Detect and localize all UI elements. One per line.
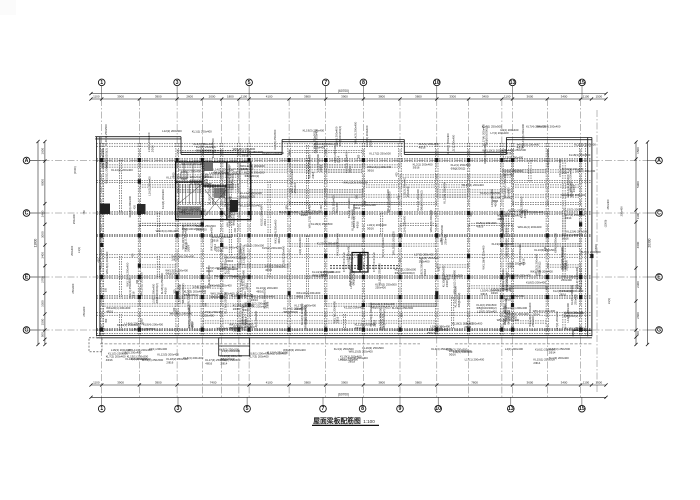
svg-text:L3(3) 200x400: L3(3) 200x400: [298, 237, 302, 255]
svg-text:Φ8@100/200(2): Φ8@100/200(2): [181, 283, 185, 303]
svg-text:KL17(3) 250x500: KL17(3) 250x500: [134, 327, 156, 331]
svg-text:WKL5(1) 200x400: WKL5(1) 200x400: [105, 161, 109, 184]
svg-text:2Φ16: 2Φ16: [464, 325, 471, 329]
svg-text:250x400: 250x400: [293, 182, 297, 193]
svg-text:400: 400: [173, 172, 176, 177]
svg-text:400: 400: [396, 172, 399, 177]
svg-text:KL19(3) 250x500: KL19(3) 250x500: [492, 242, 514, 246]
svg-text:KL17(2) 250x500: KL17(2) 250x500: [369, 152, 391, 156]
svg-text:L1(3): L1(3): [607, 298, 611, 304]
svg-text:4Φ16: 4Φ16: [493, 200, 497, 207]
svg-text:7800: 7800: [471, 380, 478, 384]
svg-text:3800: 3800: [415, 95, 422, 99]
svg-text:1500: 1500: [595, 380, 602, 384]
svg-text:350: 350: [288, 151, 291, 156]
svg-text:350: 350: [251, 293, 254, 298]
svg-text:4Φ16: 4Φ16: [296, 294, 303, 298]
svg-text:3400: 3400: [40, 252, 44, 259]
svg-text:9: 9: [399, 406, 402, 412]
svg-text:750: 750: [82, 210, 86, 215]
svg-text:250x400: 250x400: [70, 245, 74, 256]
svg-text:E: E: [25, 275, 29, 281]
svg-text:KL18(4) 250x500: KL18(4) 250x500: [311, 222, 333, 226]
svg-text:2Φ16: 2Φ16: [559, 292, 566, 296]
svg-text:Φ8@200(2): Φ8@200(2): [245, 174, 260, 178]
svg-text:4600: 4600: [636, 241, 640, 248]
svg-text:250x400: 250x400: [606, 199, 610, 210]
svg-text:350: 350: [105, 318, 108, 323]
svg-text:Φ8@200(2): Φ8@200(2): [457, 293, 461, 308]
svg-text:250x400: 250x400: [620, 206, 624, 217]
svg-text:KL1(2) 200x400: KL1(2) 200x400: [344, 306, 364, 310]
svg-text:WKL4(3) 200x400: WKL4(3) 200x400: [353, 121, 357, 144]
svg-text:5: 5: [248, 80, 251, 86]
svg-text:1500: 1500: [595, 95, 602, 99]
svg-text:KL10(2) 250x500: KL10(2) 250x500: [104, 124, 108, 146]
svg-text:3800: 3800: [304, 380, 311, 384]
svg-text:KL12(4) 200x400: KL12(4) 200x400: [128, 195, 132, 217]
svg-text:WKL8(2) 200x400: WKL8(2) 200x400: [105, 251, 109, 274]
svg-text:KL4(4) 250x500: KL4(4) 250x500: [273, 129, 277, 149]
svg-text:L7(3) 200x400: L7(3) 200x400: [555, 311, 559, 329]
svg-text:400: 400: [320, 205, 323, 210]
svg-text:KL14(3) 200x400: KL14(3) 200x400: [111, 168, 133, 172]
svg-text:250x400: 250x400: [443, 234, 447, 245]
svg-text:1100: 1100: [636, 212, 640, 219]
svg-text:300: 300: [358, 154, 361, 159]
svg-text:L4(4) 200x400: L4(4) 200x400: [505, 347, 523, 351]
svg-text:Φ8@100/200(2): Φ8@100/200(2): [338, 126, 342, 146]
svg-text:KL20(3) 250x500: KL20(3) 250x500: [263, 151, 285, 155]
svg-text:L7(4) 200x400: L7(4) 200x400: [491, 131, 509, 135]
svg-text:300: 300: [206, 173, 209, 178]
svg-text:13: 13: [508, 406, 514, 412]
svg-text:2000: 2000: [209, 95, 216, 99]
svg-text:4Φ16: 4Φ16: [106, 310, 113, 314]
svg-text:WKL6(4) 200x400: WKL6(4) 200x400: [429, 209, 433, 232]
svg-text:2Φ18: 2Φ18: [131, 291, 135, 298]
svg-text:L17(2) 200x400: L17(2) 200x400: [546, 148, 550, 168]
svg-text:G: G: [657, 328, 661, 334]
svg-text:G: G: [24, 328, 28, 334]
svg-text:4Φ16: 4Φ16: [205, 361, 212, 365]
svg-text:KL8(3) 200x400: KL8(3) 200x400: [526, 281, 546, 285]
svg-text:3Φ16: 3Φ16: [242, 154, 249, 158]
svg-text:KL7(3) 200x400: KL7(3) 200x400: [249, 354, 269, 358]
svg-text:WKL10(2) 200x400: WKL10(2) 200x400: [225, 203, 229, 228]
svg-text:2Φ14: 2Φ14: [565, 216, 572, 220]
svg-text:KL15(4) 250x500: KL15(4) 250x500: [312, 131, 316, 153]
svg-text:2Φ14: 2Φ14: [572, 185, 576, 192]
svg-text:2Φ14: 2Φ14: [337, 156, 341, 163]
svg-text:4100: 4100: [266, 95, 273, 99]
svg-text:KL19(3) 250x500: KL19(3) 250x500: [362, 346, 384, 350]
svg-text:4Φ16: 4Φ16: [191, 322, 195, 329]
svg-text:1100: 1100: [93, 95, 100, 99]
svg-text:350: 350: [99, 265, 102, 270]
svg-text:4Φ16: 4Φ16: [265, 268, 272, 272]
svg-text:2Φ16: 2Φ16: [311, 171, 315, 178]
svg-text:KL18(2) 200x400: KL18(2) 200x400: [446, 133, 450, 155]
svg-text:250x400: 250x400: [564, 260, 568, 271]
svg-text:200: 200: [232, 266, 235, 271]
svg-text:KL4(1) 250x500: KL4(1) 250x500: [482, 125, 502, 129]
svg-text:250x400: 250x400: [506, 187, 510, 198]
svg-text:1: 1: [100, 80, 103, 86]
svg-text:7: 7: [324, 80, 327, 86]
svg-text:1: 1: [100, 406, 103, 412]
svg-text:20300: 20300: [648, 238, 652, 247]
svg-text:2Φ18: 2Φ18: [445, 280, 449, 287]
svg-text:2Φ14: 2Φ14: [319, 165, 323, 172]
svg-text:400: 400: [397, 195, 400, 200]
svg-text:(60700): (60700): [338, 89, 349, 93]
svg-text:3900: 3900: [155, 95, 162, 99]
svg-text:300: 300: [356, 194, 359, 199]
svg-text:2Φ14: 2Φ14: [244, 317, 248, 324]
svg-text:2Φ16: 2Φ16: [166, 361, 173, 365]
svg-text:Φ8@100/200(2): Φ8@100/200(2): [231, 169, 235, 189]
svg-text:4Φ16: 4Φ16: [517, 146, 524, 150]
svg-text:250x400: 250x400: [71, 283, 75, 294]
svg-text:3900: 3900: [341, 380, 348, 384]
svg-text:KL9(4) 200x400: KL9(4) 200x400: [143, 322, 163, 326]
svg-text:1500: 1500: [40, 318, 44, 325]
svg-text:4Φ16: 4Φ16: [340, 358, 347, 362]
svg-text:250x400: 250x400: [531, 316, 535, 327]
svg-text:L10(1) 200x400: L10(1) 200x400: [182, 170, 202, 174]
svg-text:250x400: 250x400: [72, 214, 76, 225]
svg-text:L15(3) 200x400: L15(3) 200x400: [349, 269, 353, 289]
svg-text:Φ8@200(2): Φ8@200(2): [231, 211, 235, 226]
svg-text:C: C: [657, 211, 661, 217]
svg-text:2Φ14: 2Φ14: [549, 350, 556, 354]
svg-text:400: 400: [102, 211, 105, 216]
svg-text:3Φ16: 3Φ16: [449, 353, 456, 357]
svg-text:2Φ16: 2Φ16: [233, 307, 240, 311]
svg-text:WKL13(1) 200x400: WKL13(1) 200x400: [561, 193, 586, 197]
svg-text:250x400: 250x400: [203, 314, 214, 318]
svg-text:3400: 3400: [561, 95, 568, 99]
svg-text:13: 13: [510, 80, 516, 86]
svg-text:300: 300: [285, 205, 288, 210]
svg-text:1100: 1100: [583, 95, 590, 99]
svg-text:3300: 3300: [449, 95, 456, 99]
svg-text:KL10(4) 250x500: KL10(4) 250x500: [443, 182, 447, 204]
svg-text:A: A: [25, 158, 29, 164]
svg-text:3: 3: [176, 80, 179, 86]
svg-text:300: 300: [576, 326, 579, 331]
svg-text:3300: 3300: [40, 300, 44, 307]
svg-text:Φ8@100/200(2): Φ8@100/200(2): [304, 305, 308, 325]
svg-text:350: 350: [440, 238, 443, 243]
svg-text:2Φ18: 2Φ18: [321, 273, 328, 277]
svg-text:300: 300: [544, 246, 547, 251]
svg-text:300: 300: [173, 289, 176, 294]
svg-text:Φ8@100/200(2): Φ8@100/200(2): [155, 283, 159, 303]
svg-text:KL17(3) 250x500: KL17(3) 250x500: [166, 175, 188, 179]
svg-text:500: 500: [40, 332, 44, 337]
svg-text:4Φ16: 4Φ16: [106, 358, 113, 362]
svg-text:4Φ16: 4Φ16: [164, 287, 168, 294]
svg-text:Φ8@100/200(2): Φ8@100/200(2): [382, 309, 386, 329]
svg-text:Φ8@200(2): Φ8@200(2): [451, 167, 466, 171]
svg-text:(1500): (1500): [73, 166, 77, 174]
svg-text:C: C: [25, 211, 29, 217]
svg-text:WKL13(4) 200x400: WKL13(4) 200x400: [507, 274, 532, 278]
svg-text:300: 300: [104, 287, 107, 292]
svg-text:4Φ16: 4Φ16: [504, 159, 511, 163]
svg-text:3Φ16: 3Φ16: [367, 227, 374, 231]
svg-text:L1(1): L1(1): [77, 247, 81, 253]
svg-text:KL17(3) 250x500: KL17(3) 250x500: [223, 292, 227, 314]
svg-text:Φ8@200(2): Φ8@200(2): [213, 171, 228, 175]
svg-text:KL8(3) 250x500: KL8(3) 250x500: [388, 191, 392, 211]
svg-text:WKL11(3) 200x400: WKL11(3) 200x400: [504, 297, 508, 321]
svg-text:KL6(3) 200x400: KL6(3) 200x400: [183, 356, 203, 360]
svg-text:250x400: 250x400: [427, 331, 438, 335]
svg-text:400: 400: [546, 285, 549, 290]
svg-text:KL12(3) 200x400: KL12(3) 200x400: [157, 353, 179, 357]
svg-text:350: 350: [399, 258, 402, 263]
svg-text:2300: 2300: [636, 281, 640, 288]
svg-text:400: 400: [364, 200, 367, 205]
svg-text:Φ8@200(2): Φ8@200(2): [538, 262, 542, 277]
svg-text:7: 7: [322, 406, 325, 412]
svg-text:300: 300: [236, 291, 239, 296]
svg-text:5900: 5900: [636, 181, 640, 188]
svg-text:300: 300: [176, 309, 179, 314]
svg-text:200: 200: [401, 313, 404, 318]
svg-text:1100: 1100: [93, 380, 100, 384]
svg-text:250x400: 250x400: [375, 286, 386, 290]
svg-text:KL4(4) 200x400: KL4(4) 200x400: [161, 189, 165, 209]
svg-text:WKL13(4) 200x400: WKL13(4) 200x400: [536, 124, 561, 128]
svg-text:WKL4(2) 200x400: WKL4(2) 200x400: [209, 284, 232, 288]
svg-text:1100: 1100: [583, 380, 590, 384]
svg-text:3900: 3900: [155, 380, 162, 384]
svg-text:3Φ16: 3Φ16: [348, 166, 352, 173]
svg-text:KL10(3) 250x500: KL10(3) 250x500: [574, 142, 596, 146]
svg-text:3Φ16: 3Φ16: [413, 166, 420, 170]
svg-text:3600: 3600: [527, 380, 534, 384]
svg-text:10: 10: [434, 80, 440, 86]
svg-text:2Φ14: 2Φ14: [533, 313, 540, 317]
svg-text:L2(1) 200x400: L2(1) 200x400: [451, 134, 455, 152]
svg-text:L16(1) 200x400: L16(1) 200x400: [148, 176, 152, 196]
svg-text:2Φ14: 2Φ14: [355, 326, 362, 330]
svg-text:200: 200: [503, 320, 506, 325]
svg-text:2Φ16: 2Φ16: [226, 259, 233, 263]
svg-text:WKL11(2) 200x400: WKL11(2) 200x400: [518, 225, 542, 229]
svg-text:KL4(2) 250x500: KL4(2) 250x500: [554, 232, 558, 252]
svg-text:3600: 3600: [527, 95, 534, 99]
svg-text:400: 400: [136, 279, 139, 284]
svg-text:4Φ16: 4Φ16: [523, 211, 527, 218]
svg-text:KL1(1) 200x400: KL1(1) 200x400: [192, 130, 212, 134]
svg-text:3: 3: [177, 406, 180, 412]
svg-text:WKL3(4) 200x400: WKL3(4) 200x400: [336, 233, 340, 256]
svg-text:8: 8: [361, 406, 364, 412]
svg-text:400: 400: [234, 228, 237, 233]
svg-text:L14(1) 200x400: L14(1) 200x400: [576, 169, 596, 173]
svg-text:2400: 2400: [40, 210, 44, 217]
svg-text:2600: 2600: [636, 312, 640, 319]
svg-text:2Φ18: 2Φ18: [423, 269, 427, 276]
svg-text:2600: 2600: [186, 95, 193, 99]
svg-text:10: 10: [435, 406, 441, 412]
svg-text:250x400: 250x400: [406, 186, 410, 197]
svg-text:E: E: [657, 275, 661, 281]
svg-text:(60700): (60700): [338, 393, 349, 397]
svg-text:3Φ16: 3Φ16: [367, 168, 374, 172]
svg-text:WKL5(4) 200x400: WKL5(4) 200x400: [156, 229, 179, 233]
svg-text:350: 350: [141, 318, 144, 323]
svg-text:1100: 1100: [241, 95, 248, 99]
svg-text:500: 500: [636, 331, 640, 336]
svg-text:KL18(2) 200x400: KL18(2) 200x400: [452, 322, 474, 326]
svg-text:4Φ16: 4Φ16: [277, 236, 281, 243]
svg-text:400: 400: [98, 258, 101, 263]
svg-text:3400: 3400: [482, 95, 489, 99]
svg-text:L5(3) 200x400: L5(3) 200x400: [558, 158, 562, 176]
svg-text:3900: 3900: [117, 95, 124, 99]
svg-text:KL15(3) 200x400: KL15(3) 200x400: [564, 207, 586, 211]
svg-text:2Φ16: 2Φ16: [216, 249, 223, 253]
svg-text:WKL18(4) 200x400: WKL18(4) 200x400: [481, 245, 485, 270]
svg-text:WKL12(3) 200x400: WKL12(3) 200x400: [343, 180, 368, 184]
svg-text:L1(4) 200x400: L1(4) 200x400: [222, 349, 240, 353]
svg-text:250x400: 250x400: [573, 294, 577, 305]
svg-text:2Φ18: 2Φ18: [372, 319, 376, 326]
svg-text:2Φ16: 2Φ16: [243, 291, 247, 298]
svg-text:2Φ14: 2Φ14: [220, 361, 227, 365]
svg-text:KL9(4) 200x400: KL9(4) 200x400: [207, 265, 211, 285]
svg-text:L14(4) 200x400: L14(4) 200x400: [566, 303, 570, 323]
svg-text:L8(2) 200x400: L8(2) 200x400: [504, 239, 508, 257]
svg-text:Φ8@200(2): Φ8@200(2): [240, 194, 255, 198]
svg-text:KL18(3) 250x500: KL18(3) 250x500: [569, 153, 591, 157]
svg-text:L17(1) 200x400: L17(1) 200x400: [465, 358, 485, 362]
svg-text:Φ8@100/200(2): Φ8@100/200(2): [419, 190, 423, 210]
svg-text:3900: 3900: [117, 380, 124, 384]
svg-text:1100: 1100: [504, 95, 511, 99]
svg-text:4Φ16: 4Φ16: [521, 258, 525, 265]
svg-text:350: 350: [470, 212, 473, 217]
svg-text:250x400: 250x400: [561, 278, 572, 282]
svg-text:3800: 3800: [304, 95, 311, 99]
svg-text:KL3(1) 200x400: KL3(1) 200x400: [381, 237, 385, 257]
svg-text:3400: 3400: [561, 380, 568, 384]
svg-text:400: 400: [440, 326, 443, 331]
svg-text:11800: 11800: [34, 238, 38, 247]
svg-text:200: 200: [239, 249, 242, 254]
svg-text:4Φ16: 4Φ16: [476, 225, 483, 229]
svg-text:KL3(4) 200x400: KL3(4) 200x400: [483, 143, 487, 163]
svg-text:L9(3) 200x400: L9(3) 200x400: [282, 245, 286, 263]
svg-text:KL3(2) 250x500: KL3(2) 250x500: [211, 138, 215, 158]
svg-text:300: 300: [205, 302, 208, 307]
svg-text:WKL1(1) 200x400: WKL1(1) 200x400: [579, 268, 583, 291]
svg-text:7400: 7400: [210, 380, 217, 384]
svg-text:2Φ16: 2Φ16: [369, 140, 373, 147]
svg-text:KL19(3) 200x400: KL19(3) 200x400: [303, 128, 325, 132]
svg-text:KL19(3) 250x500: KL19(3) 250x500: [392, 306, 414, 310]
svg-text:Φ8@200(2): Φ8@200(2): [165, 272, 180, 276]
svg-text:4Φ16: 4Φ16: [491, 291, 498, 295]
svg-text:Φ8@200(2): Φ8@200(2): [229, 326, 244, 330]
svg-text:350: 350: [289, 294, 292, 299]
svg-text:1:100: 1:100: [363, 419, 375, 424]
svg-text:L1(4) 200x400: L1(4) 200x400: [403, 215, 407, 233]
svg-text:3Φ16: 3Φ16: [245, 282, 249, 289]
svg-text:2Φ14: 2Φ14: [263, 219, 267, 226]
svg-text:3Φ16: 3Φ16: [480, 292, 487, 296]
svg-text:L12(2) 200x400: L12(2) 200x400: [162, 129, 182, 133]
svg-text:WKL16(1) 200x400: WKL16(1) 200x400: [139, 272, 143, 297]
svg-text:(1500): (1500): [594, 244, 598, 252]
svg-text:Φ8@100/200(2): Φ8@100/200(2): [211, 184, 215, 204]
svg-text:8: 8: [362, 80, 365, 86]
svg-text:2Φ16: 2Φ16: [562, 237, 569, 241]
svg-text:3Φ16: 3Φ16: [336, 316, 340, 323]
svg-text:KL3(1) 250x500: KL3(1) 250x500: [334, 347, 354, 351]
svg-text:2Φ14: 2Φ14: [533, 361, 540, 365]
svg-text:A: A: [657, 158, 661, 164]
svg-text:3900: 3900: [341, 95, 348, 99]
svg-text:4Φ16: 4Φ16: [355, 221, 359, 228]
svg-text:1600: 1600: [40, 148, 44, 155]
svg-text:1800: 1800: [227, 95, 234, 99]
svg-text:3Φ16: 3Φ16: [266, 301, 270, 308]
svg-text:15: 15: [579, 80, 585, 86]
svg-text:3800: 3800: [415, 380, 422, 384]
svg-text:400: 400: [232, 207, 235, 212]
svg-text:4Φ16: 4Φ16: [419, 146, 426, 150]
svg-text:屋面梁板配筋图: 屋面梁板配筋图: [313, 416, 361, 425]
svg-text:5: 5: [246, 406, 249, 412]
svg-text:200: 200: [139, 258, 142, 263]
svg-text:4Φ16: 4Φ16: [508, 285, 512, 292]
svg-text:4100: 4100: [266, 380, 273, 384]
svg-text:3000: 3000: [40, 231, 44, 238]
svg-text:300: 300: [437, 267, 440, 272]
svg-text:1500: 1500: [636, 147, 640, 154]
svg-text:2Φ16: 2Φ16: [227, 267, 231, 274]
svg-text:350: 350: [500, 216, 503, 221]
svg-text:KL13(4) 200x400: KL13(4) 200x400: [462, 183, 484, 187]
svg-text:KL5(2) 200x400: KL5(2) 200x400: [262, 246, 282, 250]
svg-text:KL13(1) 250x500: KL13(1) 250x500: [127, 355, 149, 359]
svg-text:250x400: 250x400: [182, 212, 193, 216]
svg-text:2Φ16: 2Φ16: [151, 145, 155, 152]
svg-text:400: 400: [204, 289, 207, 294]
svg-text:2Φ14: 2Φ14: [507, 265, 514, 269]
svg-text:KL11(4) 250x500: KL11(4) 250x500: [267, 351, 289, 355]
svg-text:400: 400: [132, 253, 135, 258]
svg-text:3800: 3800: [378, 380, 385, 384]
svg-text:15: 15: [579, 406, 585, 412]
svg-text:L19(2) 200x400: L19(2) 200x400: [477, 309, 497, 313]
svg-text:KL1(2) 250x500: KL1(2) 250x500: [279, 210, 299, 214]
svg-text:Φ8@100/200(2): Φ8@100/200(2): [395, 271, 415, 275]
svg-text:400: 400: [134, 205, 137, 210]
svg-text:2Φ16: 2Φ16: [172, 258, 179, 262]
svg-text:8000: 8000: [40, 179, 44, 186]
svg-text:250x400: 250x400: [82, 306, 86, 317]
svg-text:250x400: 250x400: [335, 202, 339, 213]
svg-text:(1500): (1500): [604, 220, 608, 228]
